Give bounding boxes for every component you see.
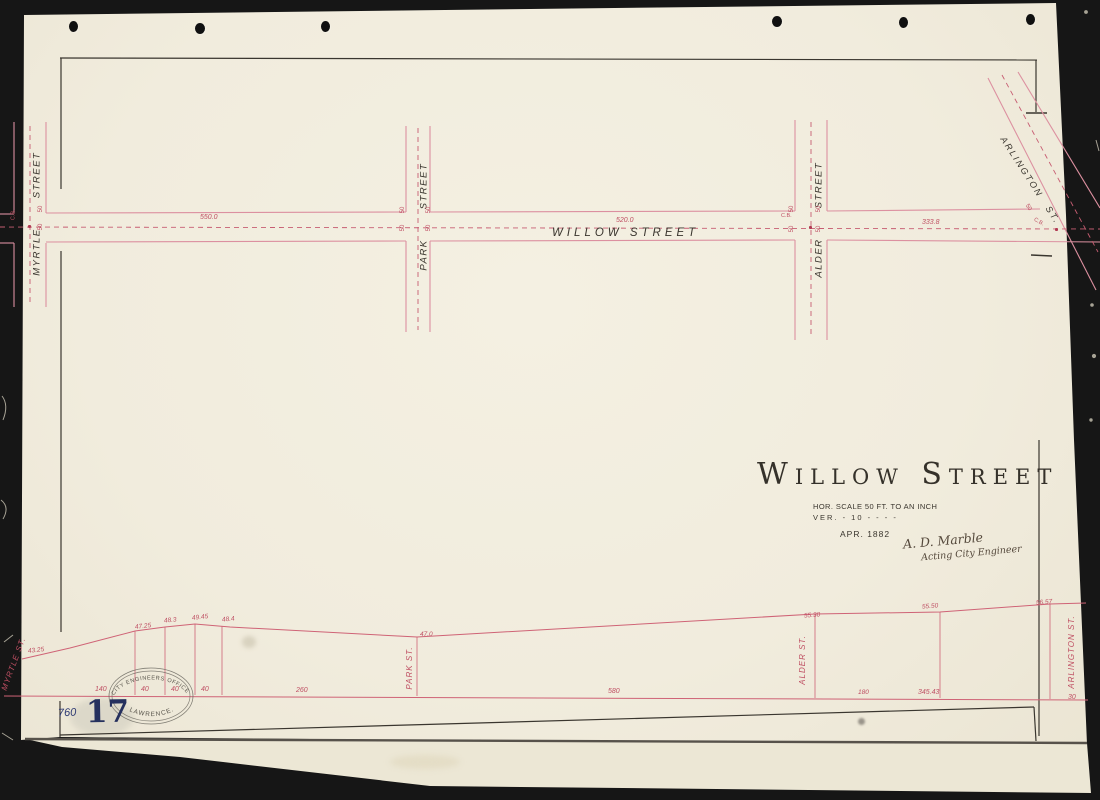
elevation-label: 48.4	[222, 616, 235, 624]
catch-basin-mark: C.B.	[781, 214, 792, 220]
profile-ordinates	[135, 604, 1050, 699]
width-mark: 50	[38, 222, 44, 232]
elevation-label: 47.0	[420, 632, 433, 639]
elevation-label: 55.50	[922, 603, 939, 611]
scratch-mark	[2, 733, 13, 740]
scan-fleck	[1090, 419, 1092, 421]
frame-tick-lower	[1031, 255, 1052, 256]
profile-grade-line	[22, 603, 1086, 659]
profile-park-label: PARK ST.	[406, 618, 414, 718]
scan-fleck	[1085, 11, 1088, 14]
willow-centerline	[0, 227, 1100, 229]
horizontal-scale-note: HOR. SCALE 50 FT. TO AN INCH	[813, 503, 937, 511]
scratch-mark	[1096, 140, 1099, 151]
sheet-title: Willow Street	[757, 460, 1058, 490]
scanned-map-sheet: CITY ENGINEERS OFFICE LAWRENCE. WILLOW S…	[0, 0, 1100, 800]
width-mark: 50	[400, 205, 406, 215]
elevation-label: 48.3	[164, 617, 177, 625]
profile-baseline	[4, 696, 1088, 700]
profile-arlington-label: ARLINGTON ST.	[1068, 597, 1076, 707]
catch-basin-mark: C.B.	[11, 207, 17, 223]
willow-street-edges	[0, 209, 1100, 243]
stamp-text-bottom: LAWRENCE.	[128, 706, 175, 718]
catalog-number-handwritten: 760	[58, 708, 77, 720]
distance-label: 40	[201, 686, 209, 693]
measurement-label: 520.0	[616, 217, 634, 224]
willow-south-edge	[46, 241, 406, 242]
scan-fleck	[1091, 304, 1094, 307]
profile-alder-label: ALDER ST.	[799, 610, 807, 710]
measurement-label: 333.8	[922, 219, 940, 226]
date-note: APR. 1882	[840, 530, 890, 539]
vertical-scale-note: VER. - 10 - - - -	[813, 514, 898, 522]
distance-label: 140	[95, 686, 107, 693]
arlington-west-edge	[988, 78, 1096, 290]
width-mark: 50	[816, 204, 822, 214]
scan-fleck	[1092, 354, 1095, 357]
stamp-text-bottom-path: LAWRENCE.	[128, 706, 175, 718]
width-mark: 50	[816, 224, 822, 234]
cross-street-edges	[14, 72, 1100, 340]
sheet-edge-shadow	[25, 739, 1087, 743]
catalog-number-stamped: 17	[86, 697, 130, 729]
distance-label: 345.43	[918, 689, 939, 696]
scratch-mark	[2, 396, 6, 420]
width-mark: 50	[426, 205, 432, 215]
willow-north-edge	[827, 209, 1040, 211]
distance-label: 30	[1068, 694, 1076, 701]
intersection-dot	[809, 226, 812, 229]
distance-label: 40	[171, 686, 179, 693]
width-mark: 50	[789, 224, 795, 234]
scan-scratches	[1, 11, 1099, 740]
width-mark: 50	[38, 204, 44, 214]
intersection-dot	[28, 225, 31, 228]
scratch-mark	[4, 635, 13, 642]
width-mark: 50	[400, 223, 406, 233]
distance-label: 580	[608, 688, 620, 695]
alder-street-label: ALDER STREET	[814, 120, 824, 320]
map-linework: CITY ENGINEERS OFFICE LAWRENCE.	[0, 0, 1100, 800]
willow-north-edge	[46, 212, 406, 213]
elevation-label: 56.57	[1036, 599, 1053, 607]
willow-south-edge	[430, 240, 795, 241]
width-mark: 50	[426, 223, 432, 233]
border-frame	[60, 58, 1052, 741]
distance-label: 180	[858, 690, 869, 697]
distance-label: 260	[296, 687, 308, 694]
scratch-mark	[1, 500, 6, 519]
willow-north-edge	[430, 211, 795, 212]
willow-street-label: WILLOW STREET	[552, 228, 699, 240]
intersection-dot	[1055, 228, 1058, 231]
frame-top	[60, 58, 1037, 60]
street-centerlines	[0, 75, 1100, 338]
elevation-label: 55.30	[804, 612, 821, 620]
frame-corner-right	[1034, 707, 1036, 741]
park-street-label: PARK STREET	[419, 117, 429, 317]
distance-label: 40	[141, 686, 149, 693]
frame-bottom	[60, 707, 1034, 735]
willow-south-edge	[827, 240, 1100, 242]
measurement-label: 550.0	[200, 214, 218, 221]
